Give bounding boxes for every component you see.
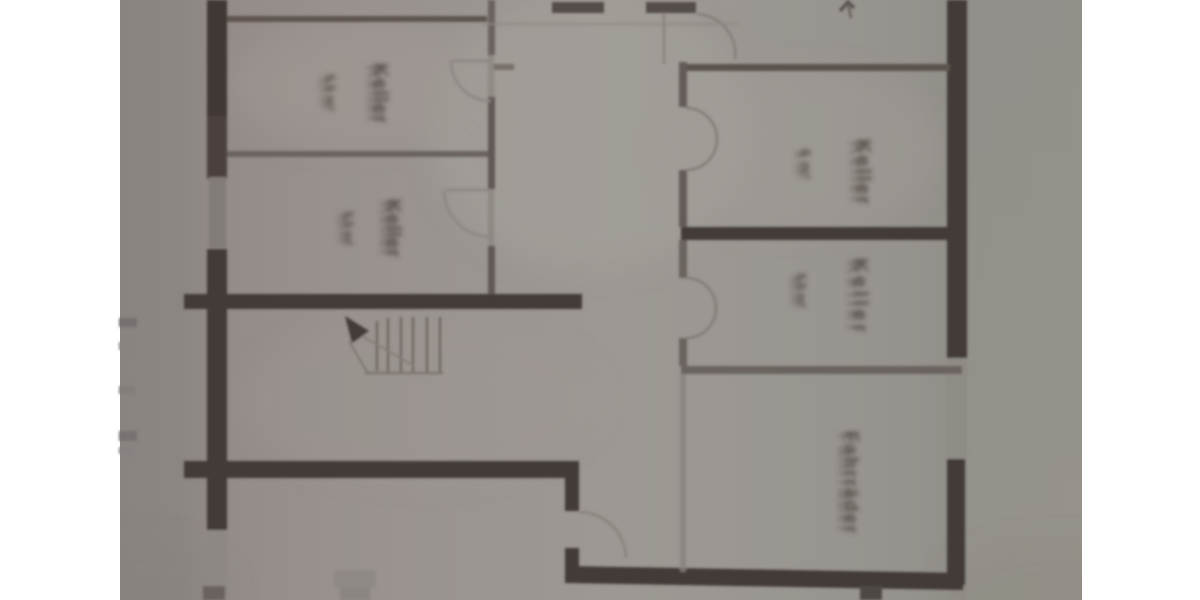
svg-text:6 m²: 6 m² [792, 151, 808, 179]
svg-text:Keller: Keller [375, 201, 397, 257]
svg-text:Fahrräder: Fahrräder [833, 433, 854, 534]
svg-text:5,5 m²: 5,5 m² [335, 213, 350, 247]
svg-text:Keller: Keller [845, 141, 867, 204]
svg-text:5,5 m²: 5,5 m² [317, 76, 332, 112]
svg-text:5,5 m²: 5,5 m² [788, 275, 803, 309]
svg-text:Keller: Keller [362, 65, 384, 123]
